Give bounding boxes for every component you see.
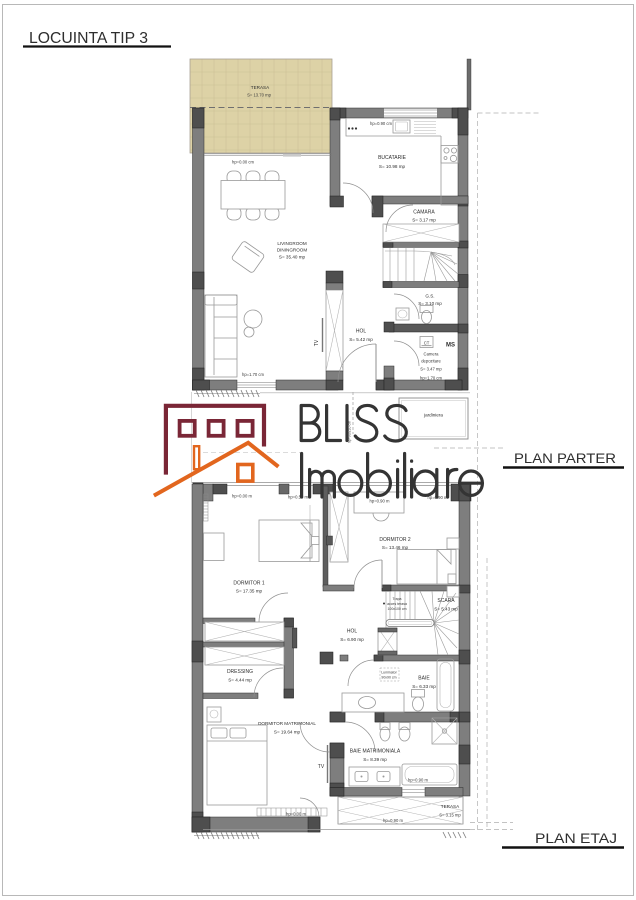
- svg-text:Trapa: Trapa: [392, 597, 401, 601]
- svg-text:G.S.: G.S.: [425, 294, 434, 299]
- svg-text:TV: TV: [318, 764, 325, 770]
- svg-text:BUCATARIE: BUCATARIE: [378, 155, 407, 161]
- svg-text:S= 6.33 mp: S= 6.33 mp: [412, 684, 436, 689]
- svg-text:hp=0.00 cm: hp=0.00 cm: [232, 160, 255, 165]
- svg-text:LOCUINTA TIP 3: LOCUINTA TIP 3: [29, 30, 148, 47]
- svg-text:S= 3.47 mp: S= 3.47 mp: [420, 367, 442, 372]
- svg-text:S= 4.44 mp: S= 4.44 mp: [228, 678, 252, 683]
- svg-text:hp=0.90 m: hp=0.90 m: [370, 499, 390, 504]
- svg-text:Camera: Camera: [424, 352, 440, 357]
- svg-text:PLAN PARTER: PLAN PARTER: [514, 451, 616, 466]
- svg-text:S= 13.70 mp: S= 13.70 mp: [247, 93, 272, 98]
- svg-text:S= 19.64 mp: S= 19.64 mp: [274, 730, 301, 735]
- svg-text:hp=0.90 m: hp=0.90 m: [383, 818, 403, 823]
- svg-text:S= 6.90 mp: S= 6.90 mp: [340, 637, 364, 642]
- svg-text:MS: MS: [446, 343, 455, 349]
- svg-text:TERASA: TERASA: [441, 804, 460, 809]
- svg-text:hp=0.00 m: hp=0.00 m: [232, 494, 252, 499]
- svg-text:hp=0.00 m: hp=0.00 m: [286, 812, 306, 817]
- svg-text:BAIE: BAIE: [418, 676, 430, 682]
- svg-text:DORMITOR 1: DORMITOR 1: [233, 581, 265, 587]
- svg-text:S= 5.43 mp: S= 5.43 mp: [434, 607, 458, 612]
- svg-text:hp=0.90 cm: hp=0.90 cm: [370, 121, 393, 126]
- svg-text:S= 3.17 mp: S= 3.17 mp: [412, 218, 436, 223]
- svg-text:SCARA: SCARA: [437, 598, 455, 604]
- svg-text:Luminator: Luminator: [381, 671, 397, 675]
- svg-text:HOL: HOL: [347, 629, 358, 635]
- svg-text:DORMITOR MATRIMONIAL: DORMITOR MATRIMONIAL: [258, 721, 316, 726]
- svg-text:S= 3.10 mp: S= 3.10 mp: [418, 301, 442, 306]
- svg-text:DRESSING: DRESSING: [227, 669, 253, 675]
- svg-text:BAIE MATRIMONIALA: BAIE MATRIMONIALA: [350, 749, 401, 755]
- svg-text:LIVINGROOM: LIVINGROOM: [277, 241, 307, 246]
- svg-text:hp=0.50 m: hp=0.50 m: [288, 495, 308, 500]
- svg-text:CT: CT: [424, 341, 430, 346]
- svg-text:DININGROOM: DININGROOM: [277, 248, 308, 253]
- svg-text:hp=1.70 cm: hp=1.70 cm: [420, 376, 443, 381]
- svg-text:90x90 cm: 90x90 cm: [381, 676, 396, 680]
- svg-text:HOL: HOL: [356, 329, 367, 335]
- svg-text:100x100 cm: 100x100 cm: [387, 607, 406, 611]
- svg-text:jardiniera: jardiniera: [423, 413, 443, 418]
- svg-text:depozitare: depozitare: [421, 359, 441, 364]
- svg-text:S= 13.46 mp: S= 13.46 mp: [382, 545, 409, 550]
- svg-text:hp=1.70 cm: hp=1.70 cm: [242, 372, 265, 377]
- svg-text:DORMITOR 2: DORMITOR 2: [379, 537, 411, 543]
- svg-text:S= 5.42 mp: S= 5.42 mp: [349, 337, 373, 342]
- svg-text:S= 3.15 mp: S= 3.15 mp: [439, 813, 461, 818]
- svg-text:S= 35.40 mp: S= 35.40 mp: [279, 255, 306, 260]
- svg-text:TERASA: TERASA: [251, 85, 270, 90]
- svg-text:S= 17.35 mp: S= 17.35 mp: [236, 589, 263, 594]
- svg-text:TV: TV: [314, 339, 320, 346]
- svg-text:S= 10.98 mp: S= 10.98 mp: [379, 164, 406, 169]
- svg-text:S= 8.39 mp: S= 8.39 mp: [363, 757, 387, 762]
- svg-text:hp=0.90 m: hp=0.90 m: [408, 778, 428, 783]
- svg-text:PLAN ETAJ: PLAN ETAJ: [535, 831, 617, 846]
- svg-text:acces terasa: acces terasa: [387, 602, 407, 606]
- svg-text:CAMARA: CAMARA: [413, 210, 435, 216]
